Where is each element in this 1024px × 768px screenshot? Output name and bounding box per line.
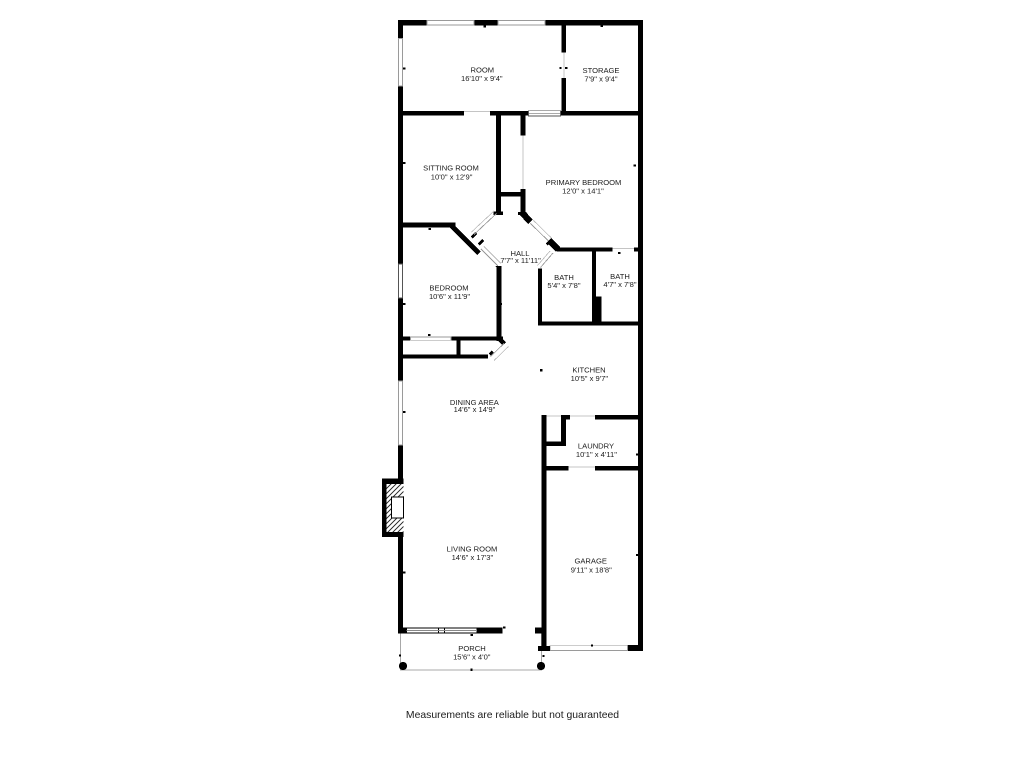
svg-text:7'7" x 11'11": 7'7" x 11'11": [500, 256, 541, 265]
svg-text:15'6" x 4'0": 15'6" x 4'0": [453, 652, 491, 661]
svg-text:SITTING ROOM: SITTING ROOM: [423, 164, 479, 173]
svg-text:GARAGE: GARAGE: [574, 557, 607, 566]
svg-text:10'6" x 11'9": 10'6" x 11'9": [429, 292, 470, 301]
svg-text:5'4" x 7'8": 5'4" x 7'8": [547, 281, 581, 290]
svg-text:7'9" x 9'4": 7'9" x 9'4": [584, 75, 618, 84]
svg-text:10'5" x 9'7": 10'5" x 9'7": [571, 374, 609, 383]
svg-text:12'0" x 14'1": 12'0" x 14'1": [562, 186, 604, 195]
svg-text:10'0" x 12'9": 10'0" x 12'9": [431, 173, 473, 182]
svg-text:14'6" x 14'9": 14'6" x 14'9": [454, 405, 496, 414]
svg-text:16'10" x 9'4": 16'10" x 9'4": [461, 74, 503, 83]
svg-text:Measurements are reliable but: Measurements are reliable but not guaran…: [406, 710, 619, 721]
svg-text:4'7" x 7'8": 4'7" x 7'8": [603, 280, 637, 289]
svg-text:10'1" x 4'11": 10'1" x 4'11": [576, 450, 617, 459]
svg-text:9'11" x 18'8": 9'11" x 18'8": [571, 565, 612, 574]
svg-text:14'6" x 17'3": 14'6" x 17'3": [452, 553, 494, 562]
